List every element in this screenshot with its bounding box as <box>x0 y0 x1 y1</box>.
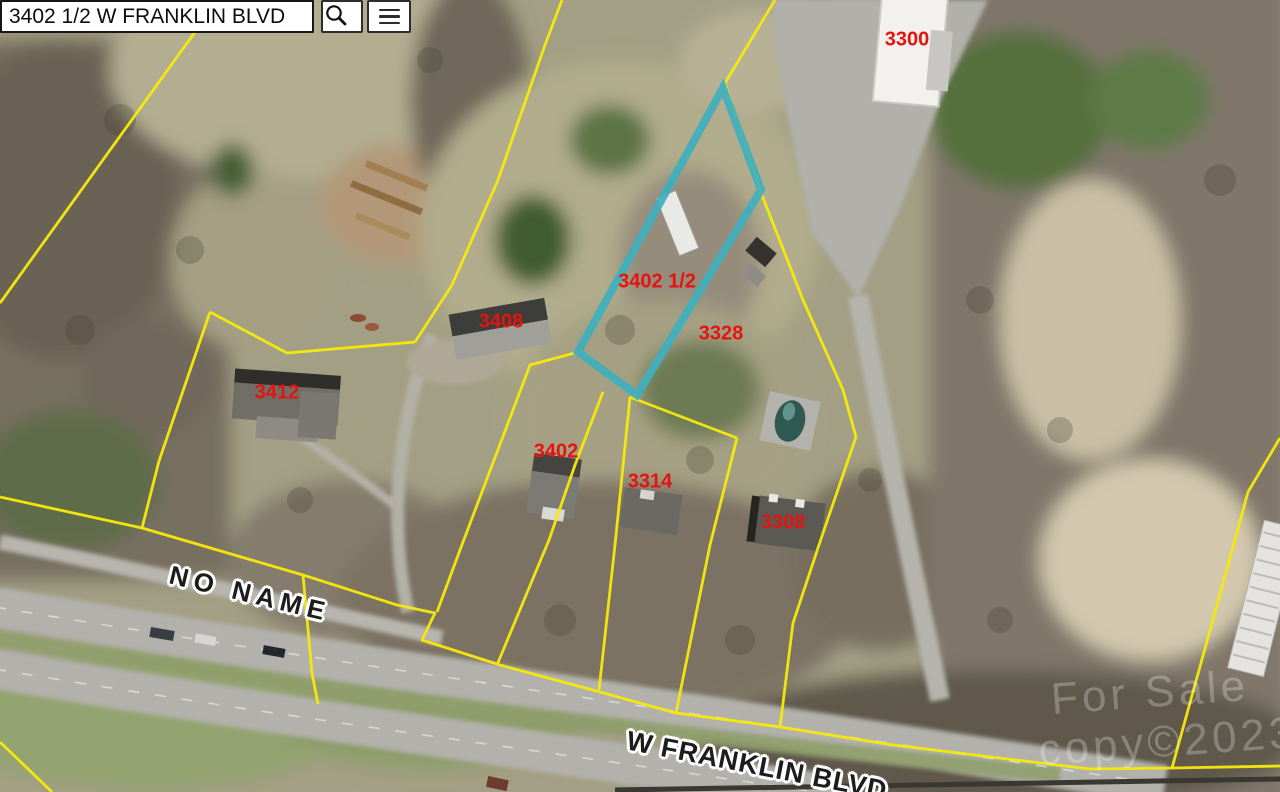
search-icon <box>323 2 349 28</box>
building-3402 <box>526 453 582 523</box>
search-input[interactable] <box>0 0 314 33</box>
horse <box>365 323 379 331</box>
map-viewport[interactable]: 33003402 1/2340833283412340233143308 NO … <box>0 0 1280 792</box>
search-button[interactable] <box>321 0 363 33</box>
building-3314 <box>619 487 682 535</box>
pool <box>759 391 820 451</box>
hamburger-icon <box>379 9 400 25</box>
search-bar <box>0 0 420 36</box>
aerial-imagery <box>0 0 1280 792</box>
building-3412 <box>230 368 340 443</box>
horse <box>350 314 366 322</box>
menu-button[interactable] <box>367 0 411 33</box>
